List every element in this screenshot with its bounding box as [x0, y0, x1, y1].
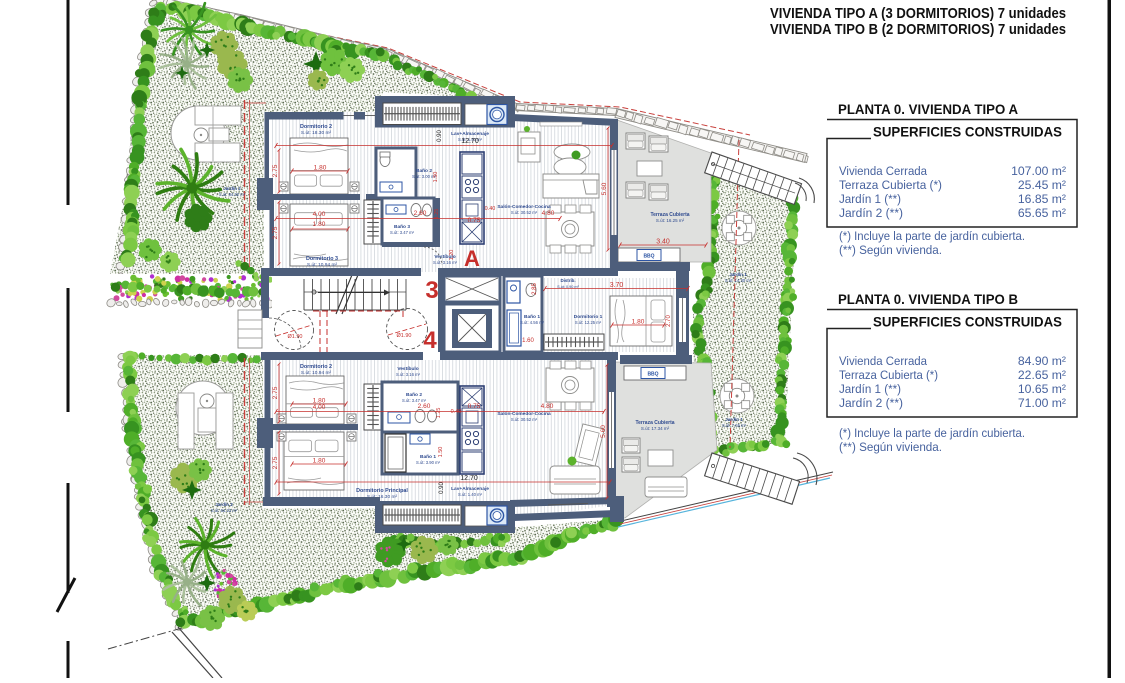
svg-text:VIVIENDA TIPO A (3 DORMITORIOS: VIVIENDA TIPO A (3 DORMITORIOS) 7 unidad… — [770, 5, 1066, 22]
svg-text:71.00 m²: 71.00 m² — [1018, 396, 1066, 410]
svg-text:1.80: 1.80 — [313, 458, 326, 465]
svg-text:5.60: 5.60 — [600, 425, 607, 438]
svg-text:Dormitorio 2: Dormitorio 2 — [300, 364, 332, 370]
svg-text:1.50: 1.50 — [438, 447, 444, 458]
svg-text:2.85: 2.85 — [532, 283, 538, 295]
svg-text:(**) Según vivienda.: (**) Según vivienda. — [839, 440, 942, 454]
svg-text:(*) Incluye la parte de jardí: (*) Incluye la parte de jardín cubierta. — [839, 229, 1025, 243]
svg-text:BBQ: BBQ — [643, 254, 654, 260]
svg-text:Vivienda Cerrada: Vivienda Cerrada — [839, 164, 927, 178]
svg-text:2.75: 2.75 — [272, 164, 279, 177]
svg-text:3.70: 3.70 — [610, 282, 624, 289]
svg-text:1.25: 1.25 — [434, 209, 440, 220]
svg-text:S.út: 4.56 m²: S.út: 4.56 m² — [520, 320, 545, 325]
svg-text:0.90: 0.90 — [439, 482, 445, 494]
svg-text:0.90: 0.90 — [437, 130, 443, 142]
svg-text:Jardín 2: Jardín 2 — [223, 186, 241, 191]
svg-text:SUPERFICIES CONSTRUIDAS: SUPERFICIES CONSTRUIDAS — [873, 124, 1062, 140]
svg-text:2.75: 2.75 — [272, 386, 279, 399]
svg-text:16.85 m²: 16.85 m² — [1018, 192, 1066, 206]
svg-text:Jardín 1 (**): Jardín 1 (**) — [839, 192, 901, 206]
svg-text:S.út: 16.25 m²: S.út: 16.25 m² — [656, 218, 685, 223]
svg-text:Vivienda Cerrada: Vivienda Cerrada — [839, 354, 927, 368]
svg-text:S.út: 3.90 m²: S.út: 3.90 m² — [416, 460, 441, 465]
svg-text:4.00: 4.00 — [313, 404, 326, 411]
svg-text:Jardín 1: Jardín 1 — [729, 272, 747, 277]
svg-text:Jardín 1 (**): Jardín 1 (**) — [839, 382, 901, 396]
svg-text:S.út: 64.92 m²: S.út: 64.92 m² — [219, 192, 246, 197]
svg-text:2.75: 2.75 — [272, 456, 279, 469]
svg-text:S.út: 17.34 m²: S.út: 17.34 m² — [641, 426, 670, 431]
svg-text:1.80: 1.80 — [632, 319, 645, 326]
svg-text:A: A — [464, 246, 480, 271]
svg-text:1.60: 1.60 — [522, 338, 534, 344]
svg-text:1.25: 1.25 — [436, 408, 442, 419]
svg-text:22.65 m²: 22.65 m² — [1018, 368, 1066, 382]
svg-text:SUPERFICIES CONSTRUIDAS: SUPERFICIES CONSTRUIDAS — [873, 314, 1062, 330]
svg-text:PLANTA 0. VIVIENDA TIPO B: PLANTA 0. VIVIENDA TIPO B — [838, 292, 1018, 307]
svg-text:3: 3 — [425, 277, 438, 304]
svg-text:(*) Incluye la parte de jardí: (*) Incluye la parte de jardín cubierta. — [839, 426, 1025, 440]
svg-text:Terraza Cubierta (*): Terraza Cubierta (*) — [839, 178, 942, 192]
svg-text:2.60: 2.60 — [418, 403, 431, 410]
svg-text:3.40: 3.40 — [656, 239, 670, 246]
svg-text:0.75: 0.75 — [468, 403, 481, 410]
svg-text:1.80: 1.80 — [314, 165, 327, 172]
svg-text:Dormitorio 2: Dormitorio 2 — [300, 124, 332, 130]
svg-text:(**) Según vivienda.: (**) Según vivienda. — [839, 243, 942, 257]
svg-text:1.80: 1.80 — [313, 221, 326, 228]
svg-text:S.út: 30.52 m²: S.út: 30.52 m² — [511, 417, 538, 422]
svg-text:84.90 m²: 84.90 m² — [1018, 354, 1066, 368]
svg-text:4.80: 4.80 — [541, 403, 554, 410]
svg-text:PLANTA 0. VIVIENDA TIPO A: PLANTA 0. VIVIENDA TIPO A — [838, 102, 1018, 117]
svg-text:Jardín 2: Jardín 2 — [215, 502, 233, 507]
svg-text:4: 4 — [423, 327, 437, 354]
svg-text:Ø1.90: Ø1.90 — [397, 333, 412, 339]
svg-text:65.65 m²: 65.65 m² — [1018, 206, 1066, 220]
svg-text:107.00 m²: 107.00 m² — [1011, 164, 1066, 178]
svg-text:Dormitorio Principal: Dormitorio Principal — [356, 488, 408, 494]
svg-text:1.20: 1.20 — [449, 250, 455, 261]
svg-text:Distrib.: Distrib. — [560, 278, 575, 283]
svg-text:Jardín 2 (**): Jardín 2 (**) — [839, 396, 903, 410]
svg-text:S.út: 18.30 m²: S.út: 18.30 m² — [301, 130, 332, 136]
svg-text:4.80: 4.80 — [542, 210, 555, 217]
svg-text:S.út: 30.52 m²: S.út: 30.52 m² — [511, 210, 538, 215]
svg-text:BBQ: BBQ — [647, 372, 658, 378]
svg-text:12.70: 12.70 — [461, 138, 479, 145]
svg-text:S.út: 10.94 m²: S.út: 10.94 m² — [307, 262, 338, 268]
svg-text:0.40: 0.40 — [451, 409, 462, 415]
svg-text:Jardín 2 (**): Jardín 2 (**) — [839, 206, 903, 220]
svg-text:0.75: 0.75 — [468, 217, 481, 224]
svg-text:S.út: 10.94 m²: S.út: 10.94 m² — [301, 370, 332, 376]
svg-text:25.45 m²: 25.45 m² — [1018, 178, 1066, 192]
svg-text:VIVIENDA TIPO B (2 DORMITORIOS: VIVIENDA TIPO B (2 DORMITORIOS) 7 unidad… — [770, 21, 1066, 38]
svg-text:2.60: 2.60 — [414, 210, 427, 217]
svg-text:Ø1.90: Ø1.90 — [288, 334, 303, 340]
svg-text:S.út: 3.16 m²: S.út: 3.16 m² — [396, 372, 421, 377]
svg-text:Jardín 1: Jardín 1 — [725, 417, 743, 422]
svg-text:S.út: 64.23 m²: S.út: 64.23 m² — [211, 508, 238, 513]
svg-text:Dormitorio 3: Dormitorio 3 — [306, 256, 338, 262]
svg-text:Terraza Cubierta (*): Terraza Cubierta (*) — [839, 368, 938, 382]
svg-text:S.út: 3.47 m²: S.út: 3.47 m² — [390, 230, 415, 235]
svg-text:0.40: 0.40 — [485, 206, 496, 212]
svg-text:10.65 m²: 10.65 m² — [1018, 382, 1066, 396]
svg-text:S.út: 12.25 m²: S.út: 12.25 m² — [575, 320, 602, 325]
svg-text:5.60: 5.60 — [601, 182, 608, 195]
svg-text:4.00: 4.00 — [313, 211, 326, 218]
svg-text:2.70: 2.70 — [666, 315, 672, 327]
svg-text:2.75: 2.75 — [272, 226, 279, 239]
svg-text:S.út: 14.30 m²: S.út: 14.30 m² — [725, 278, 752, 283]
svg-text:S.út: 7.65 m²: S.út: 7.65 m² — [722, 423, 747, 428]
svg-text:S.út: 1.40 m²: S.út: 1.40 m² — [458, 492, 483, 497]
svg-text:12.70: 12.70 — [460, 475, 478, 482]
svg-text:1.50: 1.50 — [433, 172, 439, 183]
